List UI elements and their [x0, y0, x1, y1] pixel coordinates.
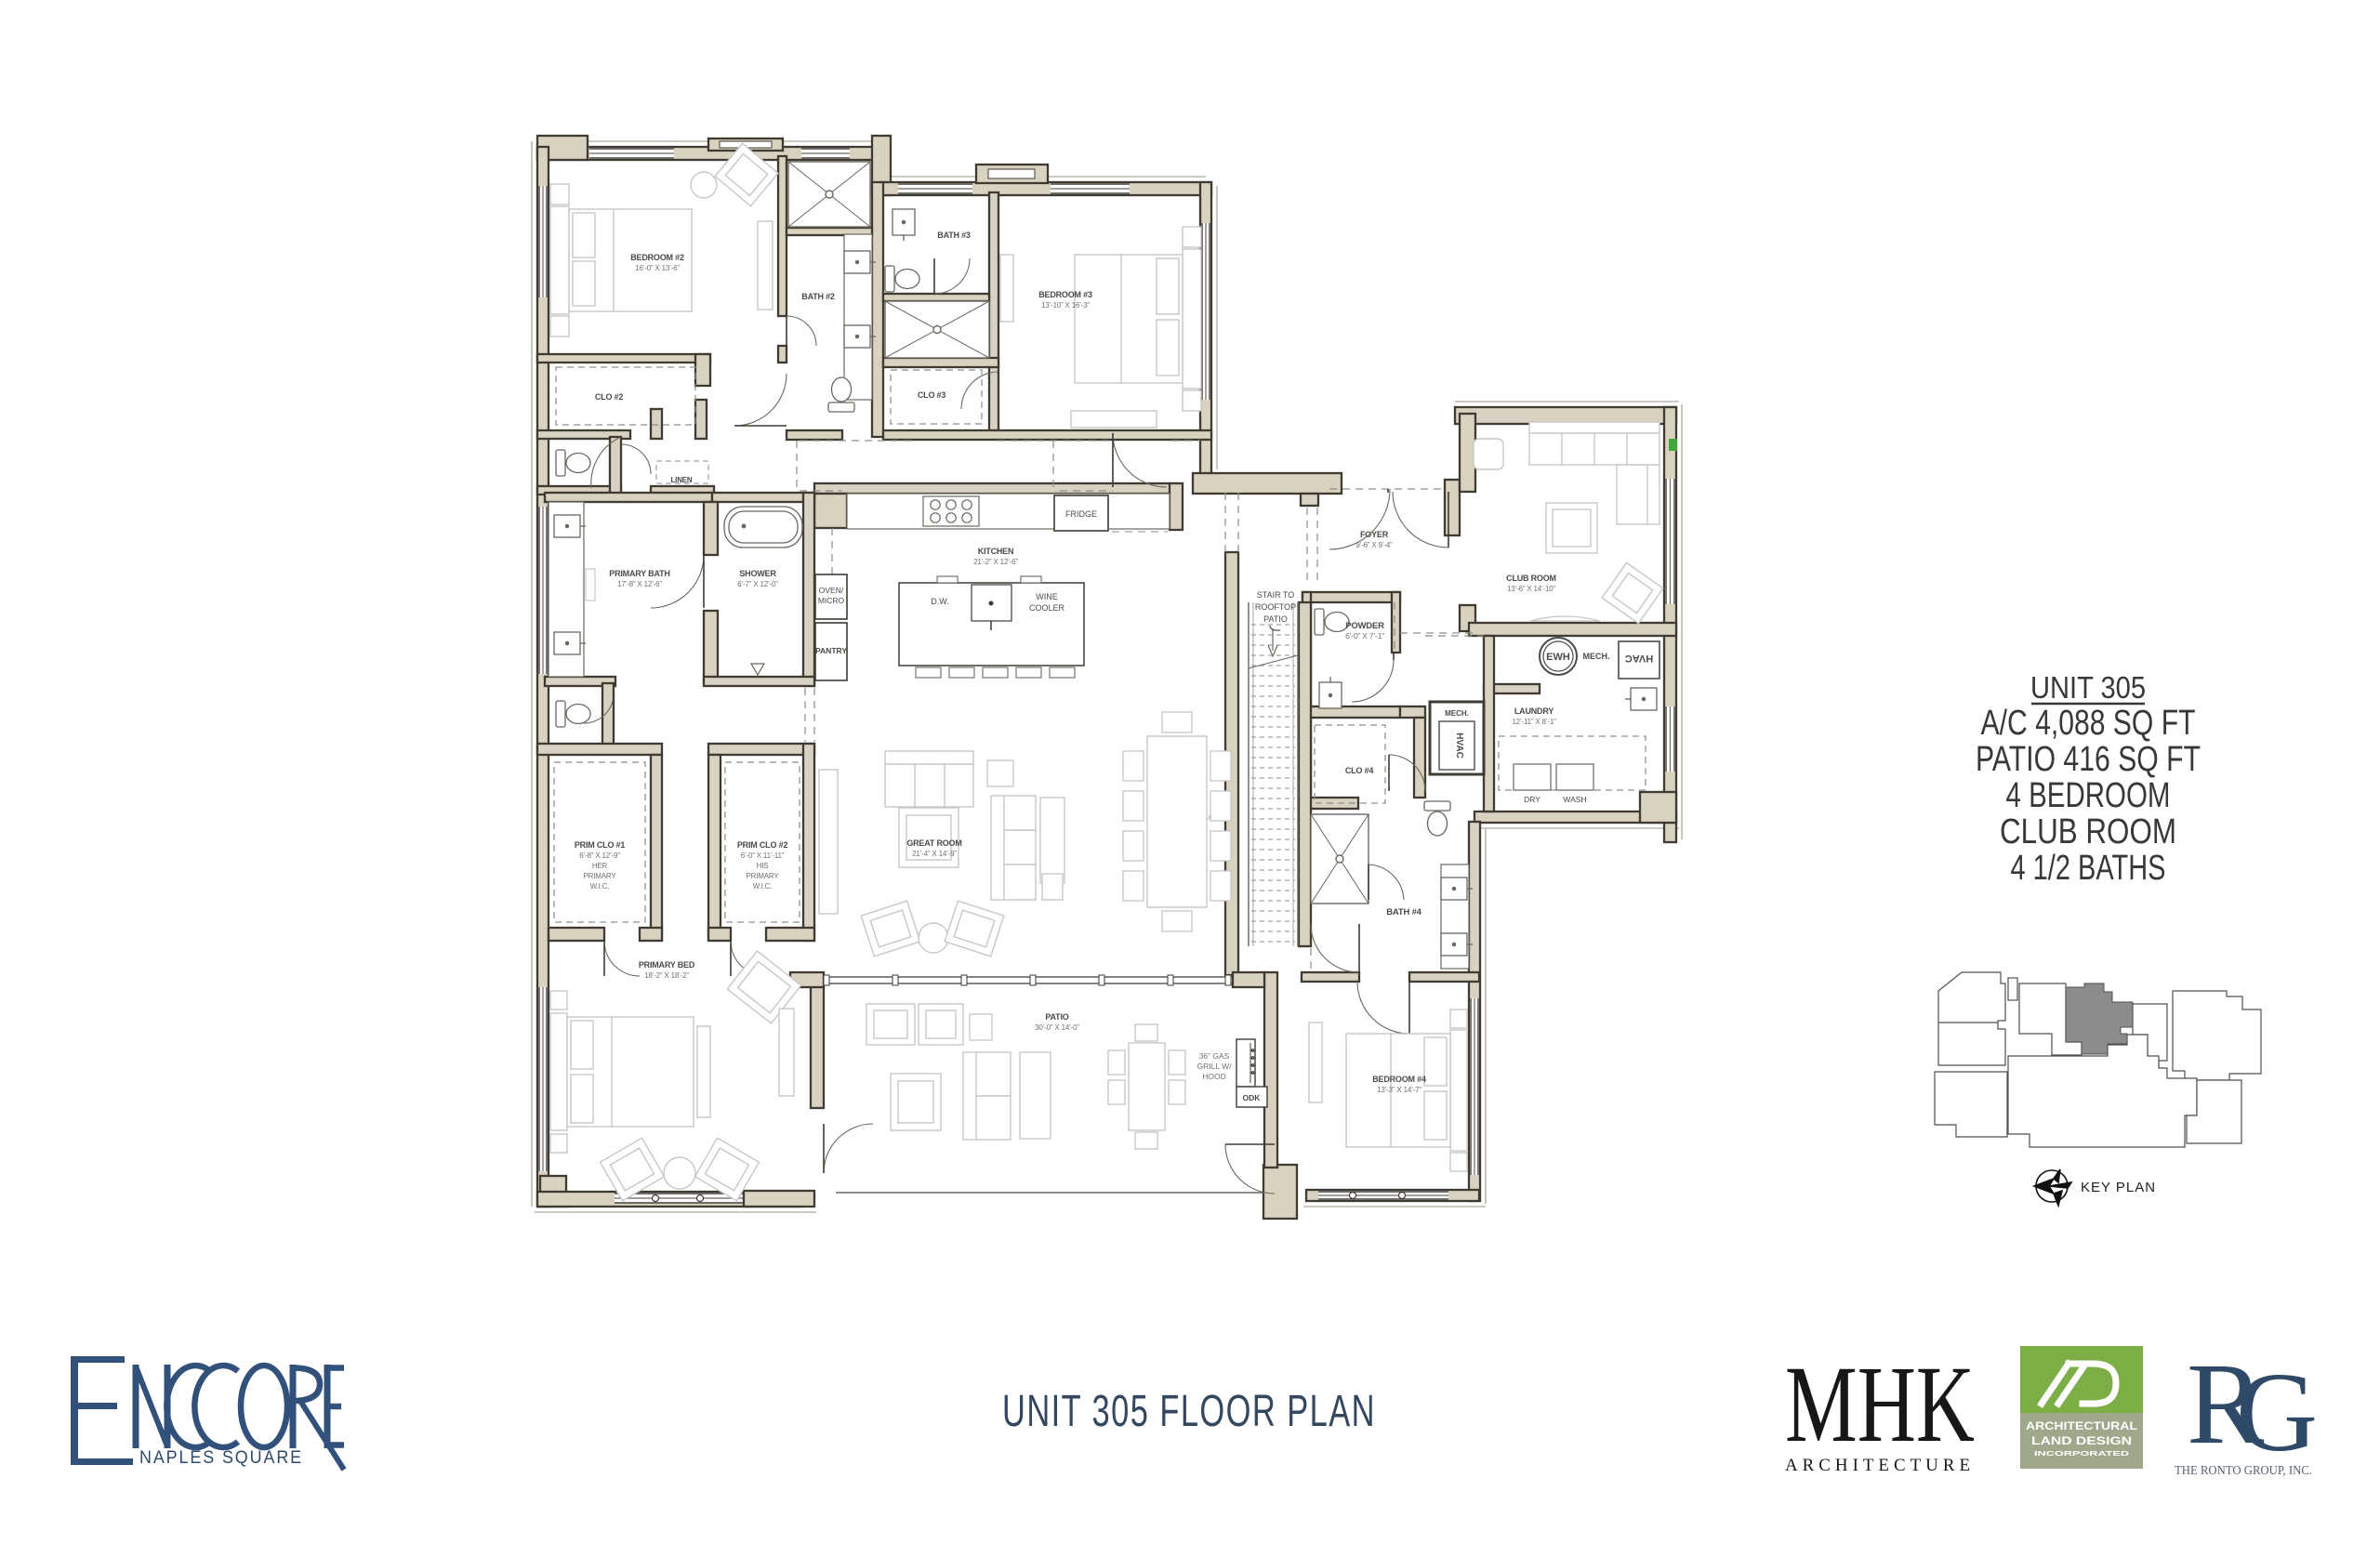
svg-text:SHOWER: SHOWER	[739, 569, 776, 578]
svg-text:DRY: DRY	[1524, 795, 1540, 804]
svg-text:4 BEDROOM: 4 BEDROOM	[2006, 776, 2171, 815]
svg-text:MICRO: MICRO	[818, 596, 845, 605]
svg-text:OVEN/: OVEN/	[819, 586, 844, 595]
svg-text:6’-0” X 11’-11”: 6’-0” X 11’-11”	[741, 851, 785, 860]
svg-text:ODK: ODK	[1243, 1093, 1262, 1102]
svg-text:6’-8” X 12’-9”: 6’-8” X 12’-9”	[579, 851, 620, 860]
svg-text:A/C 4,088 SQ FT: A/C 4,088 SQ FT	[1981, 704, 2196, 743]
svg-text:GRILL W/: GRILL W/	[1197, 1062, 1233, 1071]
svg-text:16’-0” X 13’-6”: 16’-0” X 13’-6”	[635, 264, 680, 272]
svg-text:12’-11” X 8’-1”: 12’-11” X 8’-1”	[1512, 718, 1556, 726]
svg-text:KITCHEN: KITCHEN	[978, 547, 1014, 556]
svg-text:21’-4” X 14’-9”: 21’-4” X 14’-9”	[912, 850, 957, 858]
svg-text:GREAT ROOM: GREAT ROOM	[906, 838, 961, 848]
svg-text:PATIO: PATIO	[1263, 614, 1288, 624]
svg-text:PRIM CLO #1: PRIM CLO #1	[575, 840, 626, 850]
svg-text:CLUB ROOM: CLUB ROOM	[1506, 574, 1556, 583]
svg-text:HVAC: HVAC	[1625, 653, 1653, 664]
svg-text:PRIMARY BED: PRIMARY BED	[639, 960, 695, 970]
svg-text:PRIMARY BATH: PRIMARY BATH	[609, 569, 669, 578]
svg-text:KEY PLAN: KEY PLAN	[2081, 1180, 2156, 1195]
svg-text:BATH #3: BATH #3	[937, 231, 971, 240]
svg-text:COOLER: COOLER	[1029, 603, 1065, 613]
svg-text:CLO #3: CLO #3	[918, 390, 946, 400]
svg-text:MECH.: MECH.	[1445, 709, 1469, 718]
svg-text:CLO #4: CLO #4	[1345, 766, 1374, 775]
svg-text:G: G	[2236, 1350, 2318, 1475]
svg-text:MHK: MHK	[1785, 1343, 1975, 1465]
svg-text:D.W.: D.W.	[931, 597, 949, 606]
svg-text:THE RONTO GROUP, INC.: THE RONTO GROUP, INC.	[2175, 1464, 2312, 1478]
svg-text:13’-10” X 16’-3”: 13’-10” X 16’-3”	[1041, 301, 1090, 310]
svg-text:6’-0” X 7’-1”: 6’-0” X 7’-1”	[1345, 631, 1384, 640]
svg-text:PATIO 416 SQ FT: PATIO 416 SQ FT	[1976, 740, 2201, 779]
svg-text:BATH #4: BATH #4	[1386, 907, 1421, 917]
svg-text:WASH: WASH	[1563, 795, 1586, 804]
svg-text:PANTRY: PANTRY	[815, 646, 847, 655]
svg-text:W.I.C.: W.I.C.	[590, 882, 610, 891]
svg-text:4 1/2 BATHS: 4 1/2 BATHS	[2011, 849, 2166, 888]
svg-text:BEDROOM #3: BEDROOM #3	[1038, 290, 1092, 299]
svg-text:HER: HER	[592, 862, 608, 870]
svg-text:17’-8” X 12’-6”: 17’-8” X 12’-6”	[617, 580, 662, 588]
svg-text:LINEN: LINEN	[670, 476, 692, 484]
svg-text:UNIT 305: UNIT 305	[2030, 670, 2146, 705]
svg-text:UNIT 305 FLOOR PLAN: UNIT 305 FLOOR PLAN	[1002, 1387, 1376, 1436]
svg-text:ARCHITECTURE: ARCHITECTURE	[1785, 1456, 1975, 1475]
svg-text:PRIM CLO #2: PRIM CLO #2	[737, 840, 788, 850]
svg-text:21’-2” X 12’-6”: 21’-2” X 12’-6”	[973, 558, 1018, 566]
svg-text:13’-3” X 14’-7”: 13’-3” X 14’-7”	[1377, 1086, 1421, 1094]
svg-text:CLO #2: CLO #2	[595, 392, 624, 402]
svg-text:PRIMARY: PRIMARY	[747, 872, 780, 880]
svg-text:LAND DESIGN: LAND DESIGN	[2031, 1434, 2132, 1447]
svg-text:W.I.C.: W.I.C.	[753, 882, 773, 891]
svg-text:MECH.: MECH.	[1583, 652, 1610, 661]
svg-text:9’-6” X 9’-4”: 9’-6” X 9’-4”	[1355, 541, 1393, 549]
svg-text:LAUNDRY: LAUNDRY	[1514, 706, 1554, 716]
svg-text:STAIR TO: STAIR TO	[1257, 590, 1295, 600]
svg-text:CLUB ROOM: CLUB ROOM	[2000, 812, 2176, 851]
svg-text:BATH #2: BATH #2	[801, 292, 835, 301]
svg-text:HVAC: HVAC	[1454, 732, 1464, 759]
svg-text:EWH: EWH	[1546, 652, 1570, 663]
svg-text:FRIDGE: FRIDGE	[1065, 509, 1097, 519]
svg-text:HIS: HIS	[757, 862, 769, 870]
svg-text:WINE: WINE	[1036, 592, 1058, 601]
svg-text:ROOFTOP: ROOFTOP	[1255, 602, 1296, 612]
svg-text:PATIO: PATIO	[1045, 1012, 1068, 1022]
svg-text:POWDER: POWDER	[1345, 621, 1384, 631]
svg-text:ARCHITECTURAL: ARCHITECTURAL	[2026, 1419, 2137, 1432]
svg-text:BEDROOM #4: BEDROOM #4	[1372, 1075, 1426, 1084]
svg-text:HOOD: HOOD	[1202, 1072, 1226, 1081]
svg-text:BEDROOM #2: BEDROOM #2	[630, 253, 684, 262]
svg-text:36” GAS: 36” GAS	[1199, 1051, 1230, 1061]
svg-text:NAPLES SQUARE: NAPLES SQUARE	[139, 1448, 303, 1468]
svg-text:18’-2” X 18’-2”: 18’-2” X 18’-2”	[644, 971, 689, 980]
svg-text:6’-7” X 12’-0”: 6’-7” X 12’-0”	[737, 580, 778, 588]
svg-text:13’-6” X 14’-10”: 13’-6” X 14’-10”	[1507, 585, 1555, 593]
svg-text:INCORPORATED: INCORPORATED	[2034, 1451, 2129, 1458]
svg-text:30’-0” X 14’-0”: 30’-0” X 14’-0”	[1035, 1023, 1079, 1032]
svg-text:PRIMARY: PRIMARY	[584, 872, 617, 880]
